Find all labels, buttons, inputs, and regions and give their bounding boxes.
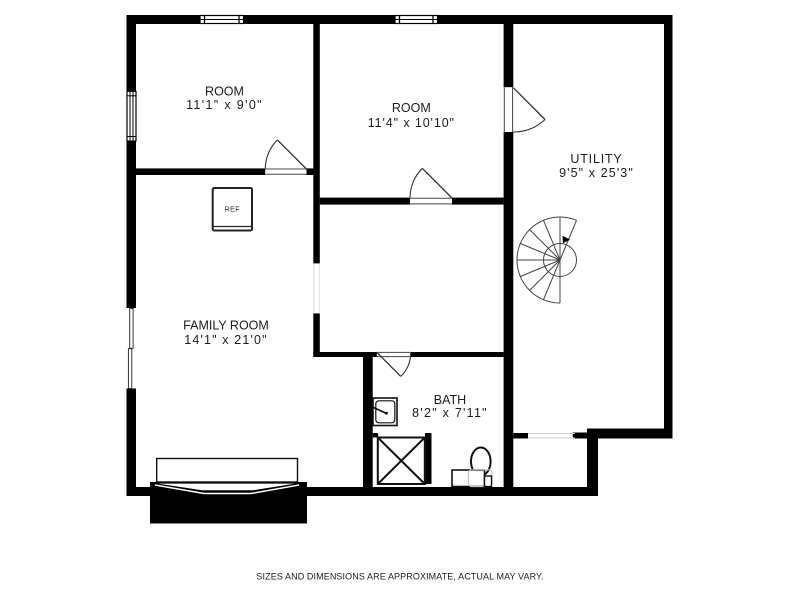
svg-text:11'1" x 9'0": 11'1" x 9'0" (186, 98, 263, 112)
svg-text:BATH: BATH (434, 393, 466, 407)
svg-text:8'2" x 7'11": 8'2" x 7'11" (412, 406, 488, 420)
svg-text:9'5" x 25'3": 9'5" x 25'3" (559, 166, 634, 180)
svg-text:11'4" x 10'10": 11'4" x 10'10" (368, 116, 455, 130)
svg-text:ROOM: ROOM (392, 101, 431, 115)
svg-text:UTILITY: UTILITY (570, 152, 622, 166)
svg-text:REF: REF (225, 207, 241, 214)
svg-text:SIZES AND DIMENSIONS ARE APPRO: SIZES AND DIMENSIONS ARE APPROXIMATE, AC… (256, 572, 543, 582)
svg-text:14'1" x 21'0": 14'1" x 21'0" (184, 333, 268, 347)
svg-text:ROOM: ROOM (205, 84, 244, 98)
svg-text:FAMILY ROOM: FAMILY ROOM (183, 319, 269, 333)
